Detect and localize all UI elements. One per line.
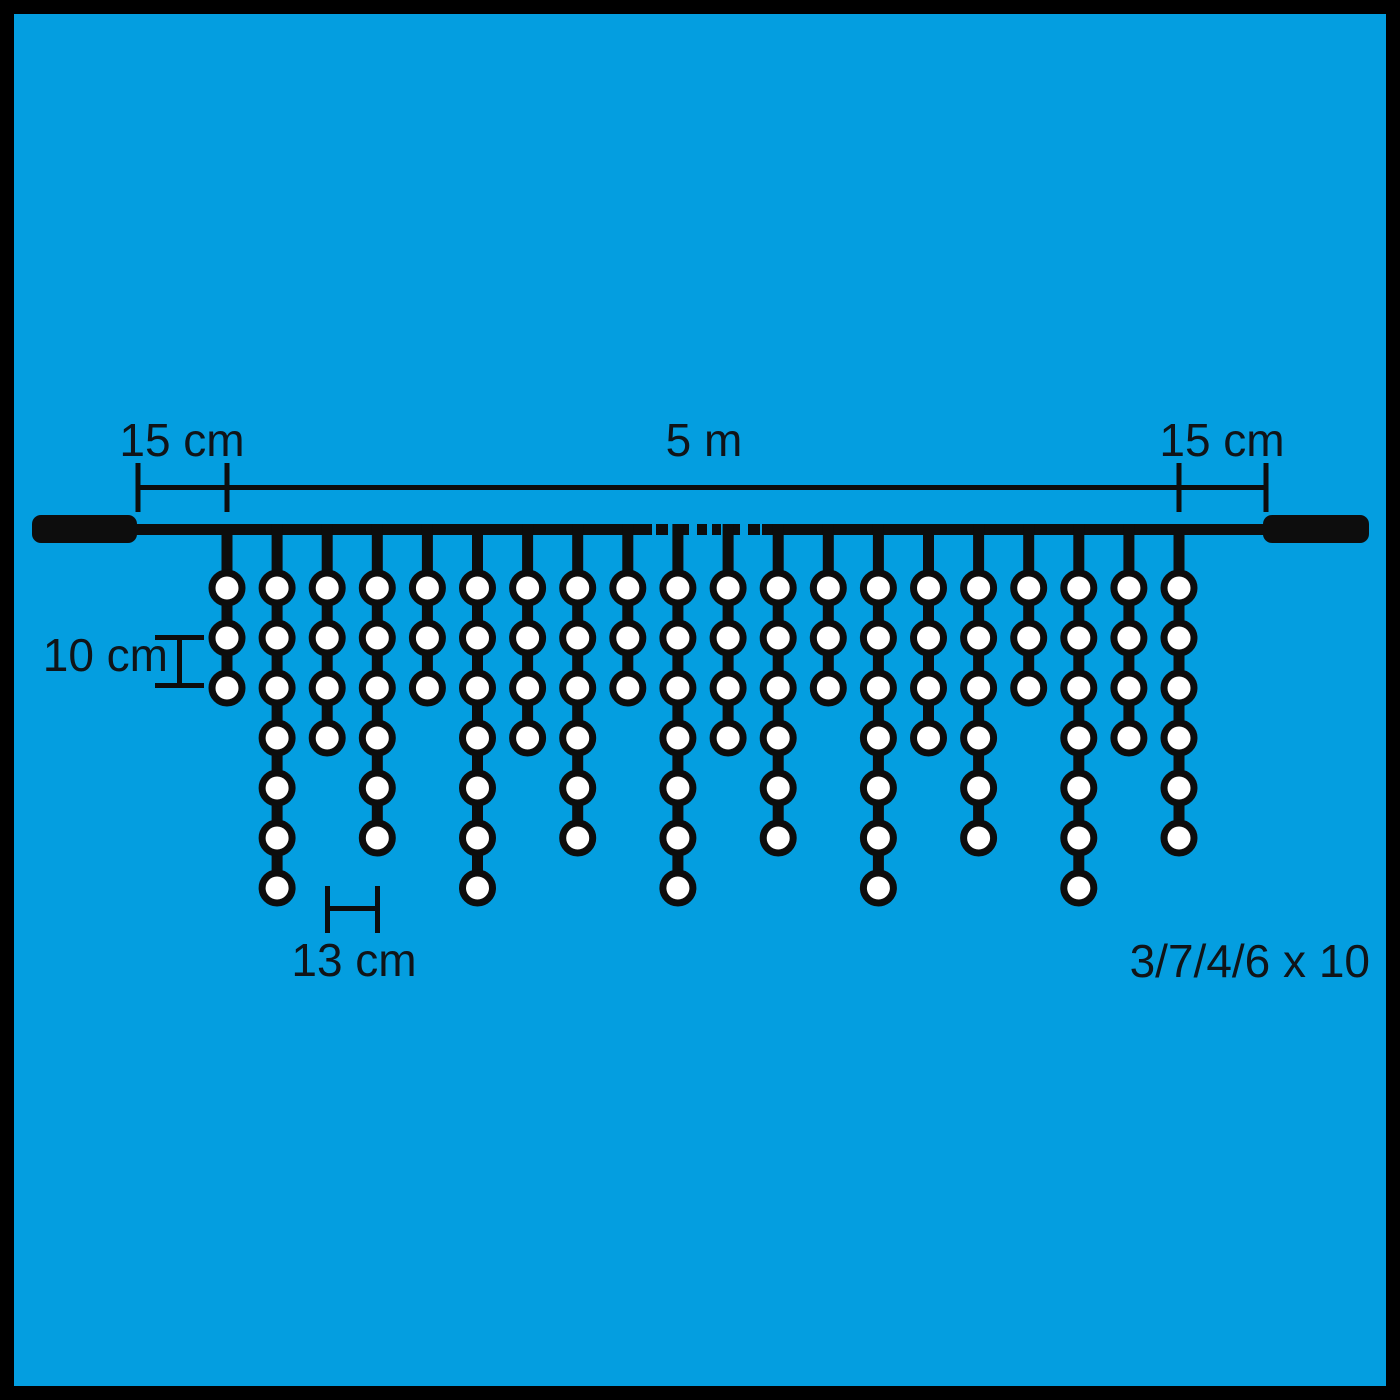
- bulb: [763, 823, 793, 853]
- wire-dash: [712, 524, 721, 535]
- bulb: [412, 623, 442, 653]
- bulb: [362, 773, 392, 803]
- bulb: [262, 773, 292, 803]
- bulb: [463, 823, 493, 853]
- bulb: [212, 573, 242, 603]
- bulb: [914, 723, 944, 753]
- bulb: [613, 573, 643, 603]
- label-right-margin: 15 cm: [1159, 414, 1284, 466]
- bulb: [813, 623, 843, 653]
- bulb: [1064, 873, 1094, 903]
- bulb: [763, 723, 793, 753]
- bulb: [863, 723, 893, 753]
- bulb: [362, 673, 392, 703]
- bulb: [1064, 573, 1094, 603]
- tick-cap-right: [1264, 463, 1269, 512]
- bulb: [412, 573, 442, 603]
- bulb: [763, 773, 793, 803]
- bulb: [863, 773, 893, 803]
- bulb: [813, 673, 843, 703]
- bulb: [463, 623, 493, 653]
- bulb: [312, 573, 342, 603]
- bulb: [412, 673, 442, 703]
- bracket-cross-bar: [325, 906, 380, 911]
- bulb: [663, 573, 693, 603]
- bulb: [663, 823, 693, 853]
- bulb: [312, 723, 342, 753]
- bracket-stem: [177, 635, 182, 688]
- bulb: [1164, 573, 1194, 603]
- bulb: [1064, 623, 1094, 653]
- bulb: [964, 773, 994, 803]
- bulb: [863, 623, 893, 653]
- label-bulb-spacing: 10 cm: [43, 629, 168, 681]
- bulb: [262, 673, 292, 703]
- bulb: [964, 823, 994, 853]
- label-drop-spacing: 13 cm: [291, 934, 416, 986]
- bulb: [563, 573, 593, 603]
- wire-dash: [656, 524, 668, 535]
- bulb: [362, 723, 392, 753]
- bulb: [914, 573, 944, 603]
- wire-dash: [697, 524, 707, 535]
- bulb: [1064, 723, 1094, 753]
- bulb: [262, 573, 292, 603]
- bulb: [362, 573, 392, 603]
- dimension-rule: [138, 485, 1266, 490]
- bulb: [362, 823, 392, 853]
- left-plug-cap: [32, 515, 137, 543]
- tick-cap-left: [136, 463, 141, 512]
- bulb: [763, 623, 793, 653]
- bulb: [964, 573, 994, 603]
- bulb: [914, 623, 944, 653]
- bulb: [1164, 823, 1194, 853]
- bulb: [1164, 623, 1194, 653]
- bulb: [1064, 773, 1094, 803]
- bulb: [1114, 573, 1144, 603]
- bulb: [362, 623, 392, 653]
- label-total-length: 5 m: [666, 414, 743, 466]
- bulb: [663, 723, 693, 753]
- bulb: [513, 623, 543, 653]
- bulb: [1114, 723, 1144, 753]
- bulb: [713, 673, 743, 703]
- bulb: [312, 673, 342, 703]
- bulb: [513, 573, 543, 603]
- bulb: [863, 673, 893, 703]
- bulb: [964, 623, 994, 653]
- tick-first-drop: [225, 463, 230, 512]
- bulb: [463, 673, 493, 703]
- bulb: [212, 623, 242, 653]
- bulb: [1014, 623, 1044, 653]
- label-drop-pattern: 3/7/4/6 x 10: [1130, 935, 1370, 987]
- bulb: [964, 723, 994, 753]
- bulb: [312, 623, 342, 653]
- bulb: [663, 773, 693, 803]
- bulb: [463, 573, 493, 603]
- bulb: [763, 673, 793, 703]
- bulb: [262, 723, 292, 753]
- bulb: [813, 573, 843, 603]
- bulb: [863, 823, 893, 853]
- bulb: [463, 723, 493, 753]
- icicle-lights-diagram: 15 cm 5 m 15 cm 10 cm 13 cm 3/7/4/6 x 10: [0, 0, 1400, 1400]
- tick-last-drop: [1177, 463, 1182, 512]
- bulb: [262, 823, 292, 853]
- bulb: [563, 673, 593, 703]
- bulb: [863, 573, 893, 603]
- bulb: [663, 623, 693, 653]
- bulb: [262, 873, 292, 903]
- bulb: [262, 623, 292, 653]
- label-left-margin: 15 cm: [119, 414, 244, 466]
- bulb: [713, 623, 743, 653]
- bulb: [563, 773, 593, 803]
- bulb: [964, 673, 994, 703]
- bulb: [1014, 673, 1044, 703]
- bulb: [663, 673, 693, 703]
- bulb: [1114, 673, 1144, 703]
- bulb: [914, 673, 944, 703]
- wire-segment-right: [762, 524, 1264, 535]
- bulb: [1164, 673, 1194, 703]
- bulb: [613, 623, 643, 653]
- bulb: [1014, 573, 1044, 603]
- bulb: [1164, 723, 1194, 753]
- bulb: [863, 873, 893, 903]
- bulb: [563, 623, 593, 653]
- bulb: [563, 723, 593, 753]
- bulb: [513, 723, 543, 753]
- wire-dash: [748, 524, 760, 535]
- bulb: [513, 673, 543, 703]
- bulb: [1164, 773, 1194, 803]
- bulb: [212, 673, 242, 703]
- bulb: [713, 723, 743, 753]
- bulb: [1064, 673, 1094, 703]
- bulb: [563, 823, 593, 853]
- bulb: [1114, 623, 1144, 653]
- bulb: [713, 573, 743, 603]
- right-plug-cap: [1263, 515, 1369, 543]
- bulb: [1064, 823, 1094, 853]
- bulb: [763, 573, 793, 603]
- bulb: [613, 673, 643, 703]
- bulb: [663, 873, 693, 903]
- bulb: [463, 773, 493, 803]
- bulb: [463, 873, 493, 903]
